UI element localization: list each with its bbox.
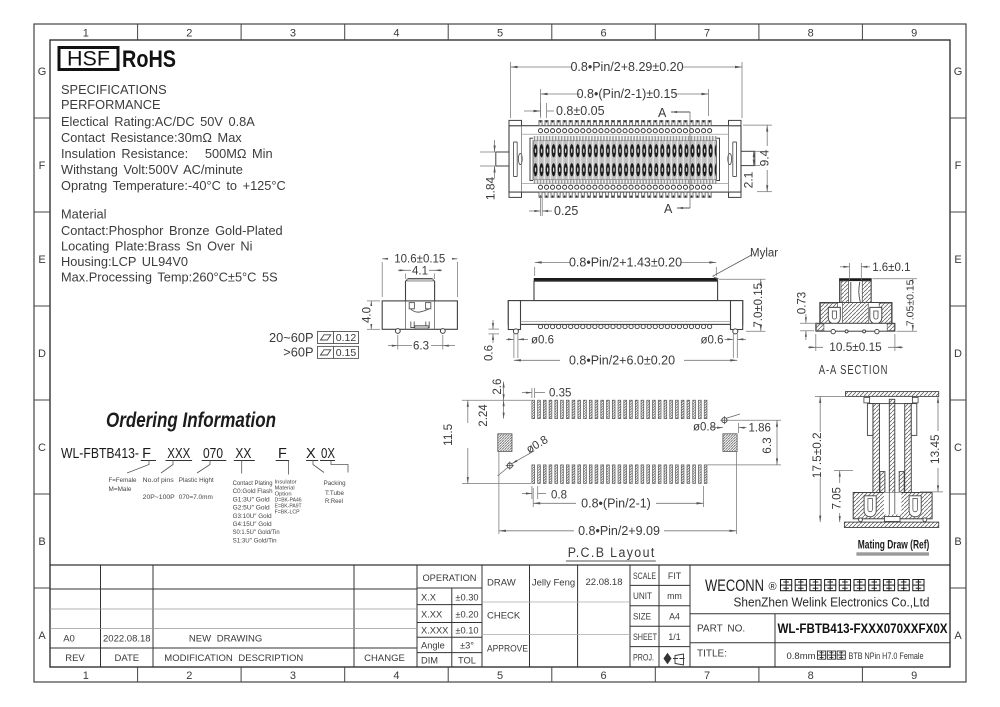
svg-text:B: B xyxy=(38,536,45,548)
svg-text:UNIT: UNIT xyxy=(633,591,653,601)
svg-text:CHECK: CHECK xyxy=(487,611,521,622)
svg-text:±0.30: ±0.30 xyxy=(455,593,478,603)
svg-text:WL-FBTB413-: WL-FBTB413- xyxy=(61,446,139,462)
svg-text:E: E xyxy=(954,254,961,266)
svg-text:A: A xyxy=(954,630,962,642)
svg-text:0.8: 0.8 xyxy=(551,489,567,501)
svg-text:Packing: Packing xyxy=(324,480,346,487)
svg-text:SHEET: SHEET xyxy=(633,632,658,642)
svg-text:APPROVE: APPROVE xyxy=(487,644,528,655)
svg-text:Max.Processing Temp:260°C±5°C: Max.Processing Temp:260°C±5°C 5S xyxy=(61,270,278,285)
svg-text:5: 5 xyxy=(497,28,503,40)
svg-text:0.8•Pin/2+8.29±0.20: 0.8•Pin/2+8.29±0.20 xyxy=(570,60,683,74)
svg-text:0X: 0X xyxy=(321,446,335,462)
svg-text:G1:3U″ Gold: G1:3U″ Gold xyxy=(233,496,270,503)
svg-text:G4:15U″ Gold: G4:15U″ Gold xyxy=(233,521,272,528)
svg-text:4.1: 4.1 xyxy=(412,265,428,277)
svg-text:6: 6 xyxy=(601,670,607,682)
svg-text:7.0±0.15: 7.0±0.15 xyxy=(753,283,765,328)
svg-text:Jelly Feng: Jelly Feng xyxy=(532,578,575,589)
svg-text:1.86: 1.86 xyxy=(749,423,771,435)
svg-text:11.5: 11.5 xyxy=(441,423,455,446)
svg-text:13.45: 13.45 xyxy=(928,434,942,464)
svg-text:A4: A4 xyxy=(669,612,680,622)
svg-text:F: F xyxy=(142,446,151,462)
svg-text:Material: Material xyxy=(61,207,107,222)
svg-text:0.8•Pin/2+6.0±0.20: 0.8•Pin/2+6.0±0.20 xyxy=(569,353,675,367)
svg-text:No.of pins: No.of pins xyxy=(143,477,175,484)
svg-text:E: E xyxy=(38,254,45,266)
svg-text:1/1: 1/1 xyxy=(668,632,680,642)
svg-text:mm: mm xyxy=(667,591,682,601)
svg-text:>60P: >60P xyxy=(283,345,313,360)
svg-text:Ordering Information: Ordering Information xyxy=(106,409,276,432)
svg-text:0.15: 0.15 xyxy=(336,347,357,359)
svg-text:Housing:LCP UL94V0: Housing:LCP UL94V0 xyxy=(61,254,188,269)
svg-text:070=7.0mm: 070=7.0mm xyxy=(179,494,213,501)
svg-text:8: 8 xyxy=(808,670,814,682)
svg-text:MODIFICATION DESCRIPTION: MODIFICATION DESCRIPTION xyxy=(164,653,303,664)
svg-text:DRAW: DRAW xyxy=(487,578,516,589)
svg-text:Mating Draw (Ref): Mating Draw (Ref) xyxy=(858,538,930,552)
svg-text:WL-FBTB413-FXXX070XXFX0X: WL-FBTB413-FXXX070XXFX0X xyxy=(778,621,948,637)
svg-text:F: F xyxy=(39,160,46,172)
svg-text:5: 5 xyxy=(497,670,503,682)
svg-text:0.8mm: 0.8mm xyxy=(787,651,816,662)
svg-text:R:Reel: R:Reel xyxy=(325,498,343,505)
svg-text:PART NO.: PART NO. xyxy=(697,624,745,635)
svg-text:4: 4 xyxy=(393,670,399,682)
svg-text:TITLE:: TITLE: xyxy=(697,649,727,660)
svg-text:10.6±0.15: 10.6±0.15 xyxy=(394,254,445,266)
svg-text:6: 6 xyxy=(601,28,607,40)
svg-text:±3°: ±3° xyxy=(460,641,474,651)
svg-text:DATE: DATE xyxy=(114,653,139,664)
svg-text:A: A xyxy=(38,630,46,642)
svg-text:C0:Gold Flash: C0:Gold Flash xyxy=(233,488,273,495)
svg-text:22.08.18: 22.08.18 xyxy=(586,577,623,588)
svg-text:NEW DRAWING: NEW DRAWING xyxy=(189,634,262,645)
svg-text:2: 2 xyxy=(186,28,192,40)
svg-text:17.5±0.2: 17.5±0.2 xyxy=(810,432,824,478)
svg-text:ø0.6: ø0.6 xyxy=(531,334,554,346)
svg-text:6.3: 6.3 xyxy=(413,341,429,353)
svg-text:2.24: 2.24 xyxy=(478,404,490,427)
svg-text:9: 9 xyxy=(911,670,917,682)
svg-text:G3:10U″ Gold: G3:10U″ Gold xyxy=(233,513,272,520)
svg-text:0.25: 0.25 xyxy=(554,204,578,218)
svg-text:3: 3 xyxy=(290,28,296,40)
svg-text:Contact:Phosphor Bronze Gold-P: Contact:Phosphor Bronze Gold-Plated xyxy=(61,223,283,238)
svg-text:ShenZhen Welink Electronics Co: ShenZhen Welink Electronics Co.,Ltd xyxy=(734,595,930,610)
svg-text:Plastic Hight: Plastic Hight xyxy=(179,477,214,484)
svg-text:G: G xyxy=(38,66,47,78)
svg-text:0.73: 0.73 xyxy=(796,292,808,314)
svg-text:C: C xyxy=(38,442,46,454)
svg-text:DIM: DIM xyxy=(421,656,438,666)
svg-text:A: A xyxy=(664,202,673,216)
svg-text:7: 7 xyxy=(704,28,710,40)
svg-text:4.0: 4.0 xyxy=(361,307,373,323)
svg-text:ø0.6: ø0.6 xyxy=(701,334,724,346)
svg-text:7.05±0.15: 7.05±0.15 xyxy=(905,279,917,326)
svg-text:B: B xyxy=(954,536,961,548)
svg-text:F: F xyxy=(955,160,962,172)
svg-text:A: A xyxy=(658,106,667,120)
svg-text:FIT: FIT xyxy=(668,571,682,581)
svg-text:2022.08.18: 2022.08.18 xyxy=(103,634,151,645)
svg-text:Insulation Resistance: 500MΩ: Insulation Resistance: 500MΩ Min xyxy=(61,146,273,161)
svg-text:S1:3U″ Gold/Tin: S1:3U″ Gold/Tin xyxy=(233,537,277,544)
svg-text:TOL: TOL xyxy=(458,656,476,666)
svg-text:7.05: 7.05 xyxy=(831,487,843,509)
svg-text:Contact Resistance:30mΩ Max: Contact Resistance:30mΩ Max xyxy=(61,130,242,145)
svg-text:070: 070 xyxy=(203,446,223,462)
svg-text:Electical Rating:AC/DC 50V 0.8: Electical Rating:AC/DC 50V 0.8A xyxy=(61,114,255,129)
svg-text:X.X: X.X xyxy=(421,593,436,603)
svg-text:D: D xyxy=(38,348,46,360)
svg-text:SPECIFICATIONS: SPECIFICATIONS xyxy=(61,82,167,97)
svg-text:1: 1 xyxy=(83,670,89,682)
svg-text:C: C xyxy=(954,442,962,454)
svg-text:2: 2 xyxy=(186,670,192,682)
svg-text:0.8•(Pin/2-1)±0.15: 0.8•(Pin/2-1)±0.15 xyxy=(577,87,678,101)
svg-text:Mylar: Mylar xyxy=(750,248,778,260)
svg-text:±0.20: ±0.20 xyxy=(455,610,478,620)
svg-text:0.8•Pin/2+9.09: 0.8•Pin/2+9.09 xyxy=(578,524,660,538)
svg-text:F=Female: F=Female xyxy=(109,477,137,484)
svg-text:X.XXX: X.XXX xyxy=(421,626,448,636)
svg-text:0.6: 0.6 xyxy=(483,345,495,361)
svg-text:OPERATION: OPERATION xyxy=(422,573,476,583)
svg-text:2.6: 2.6 xyxy=(492,379,504,395)
svg-text:BTB NPin H7.0 Female: BTB NPin H7.0 Female xyxy=(849,651,924,662)
svg-text:SIZE: SIZE xyxy=(633,612,651,622)
svg-text:8: 8 xyxy=(808,28,814,40)
svg-text:0.8•Pin/2+1.43±0.20: 0.8•Pin/2+1.43±0.20 xyxy=(569,255,682,269)
svg-text:D: D xyxy=(954,348,962,360)
svg-text:PERFORMANCE: PERFORMANCE xyxy=(61,97,161,112)
svg-text:Contact Plating: Contact Plating xyxy=(233,480,273,487)
svg-text:REV: REV xyxy=(65,653,85,664)
svg-text:1.6±0.1: 1.6±0.1 xyxy=(872,262,910,274)
svg-text:0.8±0.05: 0.8±0.05 xyxy=(556,104,605,118)
svg-text:T:Tube: T:Tube xyxy=(325,490,344,497)
svg-text:PROJ.: PROJ. xyxy=(633,652,654,662)
svg-text:SCALE: SCALE xyxy=(633,571,656,581)
svg-text:6.3: 6.3 xyxy=(760,437,774,454)
svg-text:®: ® xyxy=(769,581,777,593)
svg-text:4: 4 xyxy=(393,28,399,40)
svg-text:20P~100P: 20P~100P xyxy=(143,494,175,501)
svg-text:Opratng Temperature:-40°C to +: Opratng Temperature:-40°C to +125°C xyxy=(61,178,286,193)
svg-text:HSF: HSF xyxy=(67,47,110,71)
svg-text:G2:5U″ Gold: G2:5U″ Gold xyxy=(233,505,270,512)
svg-text:0.12: 0.12 xyxy=(336,332,357,344)
svg-text:M=Male: M=Male xyxy=(109,486,132,493)
svg-text:A0: A0 xyxy=(63,634,75,645)
svg-text:A-A SECTION: A-A SECTION xyxy=(819,362,889,377)
svg-text:P.C.B Layout: P.C.B Layout xyxy=(568,545,656,560)
svg-text:0.35: 0.35 xyxy=(549,387,571,399)
svg-text:X.XX: X.XX xyxy=(421,610,442,620)
svg-text:XXX: XXX xyxy=(167,446,190,462)
svg-text:0.8•(Pin/2-1): 0.8•(Pin/2-1) xyxy=(581,496,651,510)
svg-text:Angle: Angle xyxy=(421,641,445,651)
svg-text:S0:1.5U″ Gold/Tin: S0:1.5U″ Gold/Tin xyxy=(233,529,280,536)
svg-text:XX: XX xyxy=(235,446,251,462)
svg-text:7: 7 xyxy=(704,670,710,682)
svg-text:RoHS: RoHS xyxy=(122,46,176,73)
svg-text:G: G xyxy=(954,66,963,78)
svg-text:10.5±0.15: 10.5±0.15 xyxy=(829,340,882,354)
svg-text:Withstang Volt:500V AC/minute: Withstang Volt:500V AC/minute xyxy=(61,162,243,177)
svg-text:WECONN: WECONN xyxy=(705,577,764,595)
svg-text:9.4: 9.4 xyxy=(758,149,772,166)
svg-text:F: F xyxy=(278,446,287,462)
svg-text:9: 9 xyxy=(911,28,917,40)
svg-text:1: 1 xyxy=(83,28,89,40)
svg-text:2.1: 2.1 xyxy=(742,171,756,188)
svg-text:X: X xyxy=(306,446,316,462)
svg-text:F=BK-LCP: F=BK-LCP xyxy=(275,510,300,516)
svg-text:1.84: 1.84 xyxy=(483,176,497,200)
svg-text:20~60P: 20~60P xyxy=(269,330,313,345)
svg-text:±0.10: ±0.10 xyxy=(455,626,478,636)
svg-text:Locating Plate:Brass Sn Over N: Locating Plate:Brass Sn Over Ni xyxy=(61,239,253,254)
svg-text:3: 3 xyxy=(290,670,296,682)
svg-text:CHANGE: CHANGE xyxy=(364,653,405,664)
